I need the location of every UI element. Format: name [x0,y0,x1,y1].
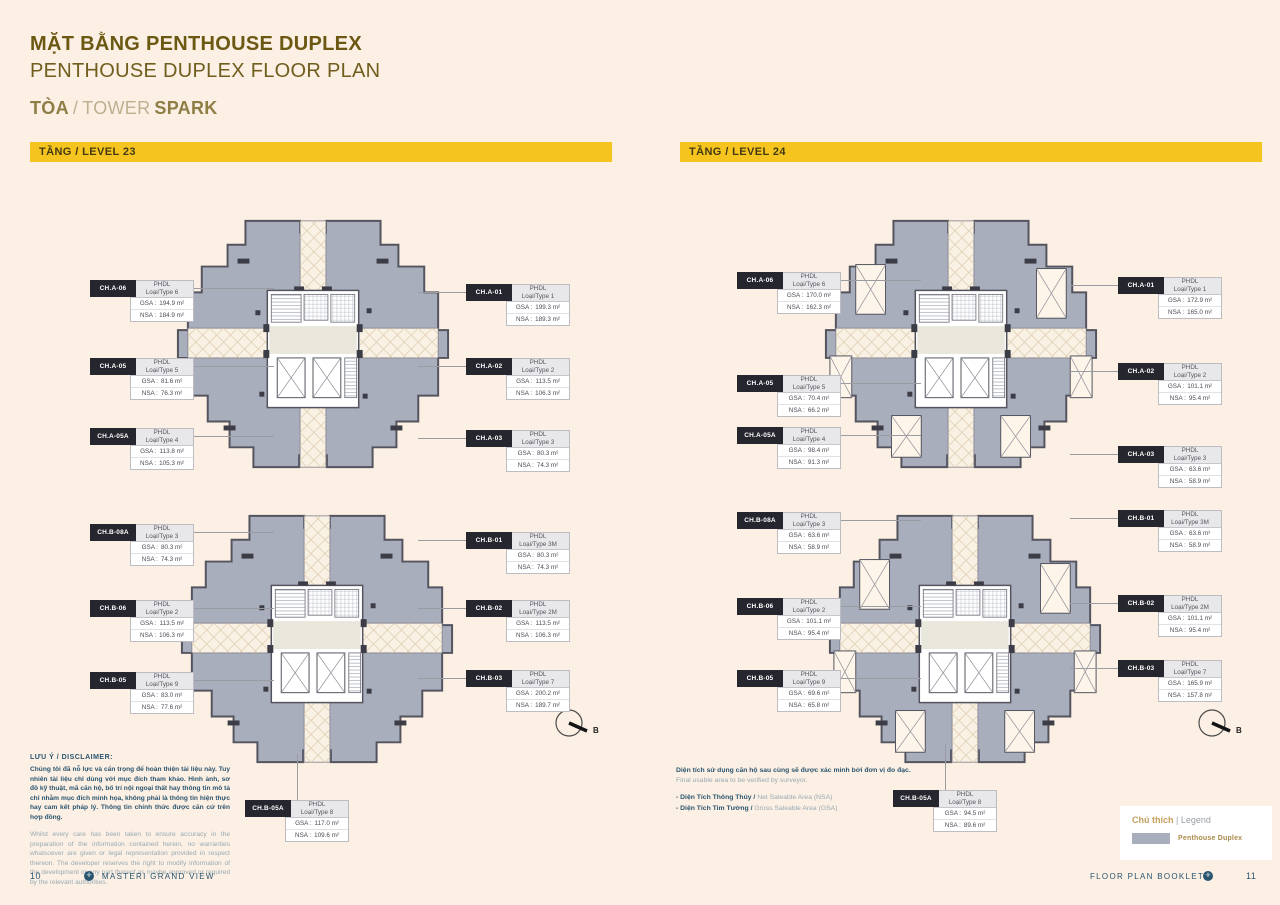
label-connector-line [418,366,466,367]
unit-code-tag: CH.A-02 [466,358,512,375]
unit-type-header: PHDL Loại/Type 2 [1159,364,1221,381]
unit-area-table: PHDL Loại/Type 6 GSA : 194.9 m² NSA : 18… [130,280,194,322]
unit-nsa-row: NSA : 189.7 m² [507,700,569,711]
gsa-value: 80.3 m² [537,450,558,457]
unit-class-label: PHDL [154,429,171,437]
gsa-key: GSA : [516,304,532,311]
nsa-label-vi: - Diện Tích Thông Thủy / [676,794,755,801]
unit-class-label: PHDL [530,533,547,541]
gsa-key: GSA : [518,552,534,559]
legend-title: Chú thích | Legend [1132,815,1260,825]
unit-info-card: CH.A-05 PHDL Loại/Type 5 GSA : 81.6 m² N… [90,358,194,400]
unit-nsa-row: NSA : 91.3 m² [778,457,840,468]
unit-class-label: PHDL [154,281,171,289]
unit-nsa-row: NSA : 65.8 m² [778,700,840,711]
unit-gsa-row: GSA : 63.6 m² [778,530,840,542]
unit-nsa-row: NSA : 77.6 m² [131,702,193,713]
nsa-value: 95.4 m² [808,630,829,637]
unit-area-table: PHDL Loại/Type 5 GSA : 70.4 m² NSA : 66.… [777,375,841,417]
gsa-value: 200.2 m² [535,690,560,697]
unit-area-table: PHDL Loại/Type 1 GSA : 199.3 m² NSA : 18… [506,284,570,326]
unit-type-header: PHDL Loại/Type 2 [507,359,569,376]
unit-type-header: PHDL Loại/Type 7 [507,671,569,688]
unit-info-card: CH.B-06 PHDL Loại/Type 2 GSA : 113.5 m² … [90,600,194,642]
unit-gsa-row: GSA : 83.0 m² [131,690,193,702]
unit-class-label: PHDL [801,428,818,436]
gsa-value: 80.3 m² [537,552,558,559]
gsa-value: 172.9 m² [1187,297,1212,304]
gsa-value: 63.6 m² [1189,466,1210,473]
unit-nsa-row: NSA : 184.9 m² [131,310,193,321]
unit-code-tag: CH.B-08A [737,512,783,529]
tower-label-en: TOWER [82,98,150,118]
unit-area-table: PHDL Loại/Type 2M GSA : 101.1 m² NSA : 9… [1158,595,1222,637]
unit-area-table: PHDL Loại/Type 4 GSA : 98.4 m² NSA : 91.… [777,427,841,469]
gsa-value: 194.9 m² [159,300,184,307]
unit-type-header: PHDL Loại/Type 2 [131,601,193,618]
level-24-banner: TẦNG / LEVEL 24 [680,142,1262,162]
unit-type-header: PHDL Loại/Type 3M [507,533,569,550]
gsa-value: 101.1 m² [1187,615,1212,622]
unit-class-label: PHDL [957,791,974,799]
unit-area-table: PHDL Loại/Type 3M GSA : 80.3 m² NSA : 74… [506,532,570,574]
unit-info-card: CH.B-08A PHDL Loại/Type 3 GSA : 63.6 m² … [737,512,841,554]
nsa-value: 165.0 m² [1187,309,1212,316]
gsa-value: 98.4 m² [808,447,829,454]
unit-nsa-row: NSA : 95.4 m² [1159,393,1221,404]
nsa-value: 65.8 m² [808,702,829,709]
level-24-banner-text: TẦNG / LEVEL 24 [689,146,786,158]
gsa-value: 80.3 m² [161,544,182,551]
unit-type-header: PHDL Loại/Type 5 [131,359,193,376]
nsa-key: NSA : [1168,692,1184,699]
unit-nsa-row: NSA : 74.3 m² [507,460,569,471]
unit-type-header: PHDL Loại/Type 9 [778,671,840,688]
unit-info-card: CH.B-05 PHDL Loại/Type 9 GSA : 69.6 m² N… [737,670,841,712]
unit-gsa-row: GSA : 101.1 m² [1159,613,1221,625]
gsa-key: GSA : [789,532,805,539]
unit-nsa-row: NSA : 74.3 m² [131,554,193,565]
unit-area-table: PHDL Loại/Type 1 GSA : 172.9 m² NSA : 16… [1158,277,1222,319]
unit-code-tag: CH.A-01 [466,284,512,301]
label-connector-line [1070,668,1118,669]
nsa-value: 76.3 m² [161,390,182,397]
legend-swatch [1132,833,1170,844]
unit-type-label: Loại/Type 2M [1171,604,1209,612]
unit-type-label: Loại/Type 5 [146,367,179,375]
nsa-key: NSA : [142,390,158,397]
unit-class-label: PHDL [530,431,547,439]
gsa-key: GSA : [787,618,803,625]
unit-nsa-row: NSA : 106.3 m² [131,630,193,641]
unit-type-header: PHDL Loại/Type 6 [778,273,840,290]
gsa-value: 113.8 m² [160,448,184,455]
nsa-value: 157.8 m² [1187,692,1212,699]
unit-nsa-row: NSA : 106.3 m² [507,630,569,641]
unit-class-label: PHDL [154,359,171,367]
unit-info-card: CH.A-03 PHDL Loại/Type 3 GSA : 80.3 m² N… [466,430,570,472]
unit-area-table: PHDL Loại/Type 9 GSA : 69.6 m² NSA : 65.… [777,670,841,712]
gsa-label-en: Gross Saleable Area (GSA) [754,805,837,812]
unit-gsa-row: GSA : 80.3 m² [507,448,569,460]
nsa-key: NSA : [789,630,805,637]
unit-gsa-row: GSA : 172.9 m² [1159,295,1221,307]
label-connector-line [1070,285,1118,286]
nsa-key: NSA : [295,832,311,839]
unit-type-label: Loại/Type 2M [519,609,557,617]
brand-mark-icon: ✛ [84,871,94,881]
gsa-key: GSA : [789,395,805,402]
unit-class-label: PHDL [1182,661,1199,669]
level-23-banner: TẦNG / LEVEL 23 [30,142,612,162]
unit-class-label: PHDL [530,285,547,293]
unit-gsa-row: GSA : 69.6 m² [778,688,840,700]
gsa-key: GSA : [1170,466,1186,473]
unit-nsa-row: NSA : 58.9 m² [778,542,840,553]
unit-type-label: Loại/Type 1 [1174,286,1207,294]
unit-gsa-row: GSA : 80.3 m² [131,542,193,554]
gsa-key: GSA : [945,810,961,817]
gsa-key: GSA : [1168,297,1184,304]
unit-area-table: PHDL Loại/Type 7 GSA : 200.2 m² NSA : 18… [506,670,570,712]
legend-title-separator: | [1176,815,1178,825]
label-connector-line [297,754,298,800]
unit-area-table: PHDL Loại/Type 2 GSA : 113.5 m² NSA : 10… [506,358,570,400]
nsa-key: NSA : [1168,309,1184,316]
unit-nsa-row: NSA : 106.3 m² [507,388,569,399]
unit-gsa-row: GSA : 113.5 m² [131,618,193,630]
nsa-key: NSA : [789,702,805,709]
label-connector-line [418,438,466,439]
unit-gsa-row: GSA : 81.6 m² [131,376,193,388]
unit-info-card: CH.B-01 PHDL Loại/Type 3M GSA : 80.3 m² … [466,532,570,574]
unit-code-tag: CH.A-02 [1118,363,1164,380]
unit-type-header: PHDL Loại/Type 2 [778,599,840,616]
gsa-value: 69.6 m² [808,690,829,697]
area-note-item: - Diện Tích Thông Thủy / Net Saleable Ar… [676,792,921,804]
unit-nsa-row: NSA : 74.3 m² [507,562,569,573]
unit-area-table: PHDL Loại/Type 2M GSA : 113.5 m² NSA : 1… [506,600,570,642]
unit-class-label: PHDL [530,359,547,367]
unit-code-tag: CH.B-05 [737,670,783,687]
nsa-key: NSA : [140,312,156,319]
gsa-value: 113.5 m² [536,620,560,627]
booklet-page: MẶT BẰNG PENTHOUSE DUPLEX PENTHOUSE DUPL… [0,0,1280,905]
north-compass: B [551,708,611,748]
unit-area-table: PHDL Loại/Type 8 GSA : 117.0 m² NSA : 10… [285,800,349,842]
gsa-key: GSA : [516,690,532,697]
gsa-value: 113.5 m² [160,620,184,627]
unit-info-card: CH.A-01 PHDL Loại/Type 1 GSA : 172.9 m² … [1118,277,1222,319]
label-connector-line [841,678,921,679]
unit-area-table: PHDL Loại/Type 2 GSA : 101.1 m² NSA : 95… [1158,363,1222,405]
unit-code-tag: CH.B-03 [1118,660,1164,677]
unit-info-card: CH.A-01 PHDL Loại/Type 1 GSA : 199.3 m² … [466,284,570,326]
unit-type-label: Loại/Type 4 [793,436,826,444]
unit-type-header: PHDL Loại/Type 3M [1159,511,1221,528]
unit-info-card: CH.B-05A PHDL Loại/Type 8 GSA : 117.0 m²… [245,800,349,842]
unit-type-header: PHDL Loại/Type 6 [131,281,193,298]
unit-class-label: PHDL [801,376,818,384]
unit-gsa-row: GSA : 200.2 m² [507,688,569,700]
unit-class-label: PHDL [801,273,818,281]
unit-type-label: Loại/Type 3 [146,533,179,541]
unit-gsa-row: GSA : 199.3 m² [507,302,569,314]
unit-type-header: PHDL Loại/Type 2M [1159,596,1221,613]
gsa-value: 113.5 m² [536,378,560,385]
gsa-key: GSA : [295,820,311,827]
unit-area-table: PHDL Loại/Type 2 GSA : 101.1 m² NSA : 95… [777,598,841,640]
nsa-key: NSA : [1170,395,1186,402]
unit-code-tag: CH.A-05 [737,375,783,392]
unit-area-table: PHDL Loại/Type 3M GSA : 63.6 m² NSA : 58… [1158,510,1222,552]
unit-type-label: Loại/Type 5 [793,384,826,392]
floor-plan-drawing [168,203,458,493]
label-connector-line [418,292,466,293]
nsa-key: NSA : [516,390,532,397]
nsa-key: NSA : [789,407,805,414]
unit-class-label: PHDL [154,601,171,609]
gsa-key: GSA : [1168,680,1184,687]
unit-area-table: PHDL Loại/Type 6 GSA : 170.0 m² NSA : 16… [777,272,841,314]
nsa-value: 66.2 m² [808,407,829,414]
nsa-key: NSA : [789,544,805,551]
nsa-key: NSA : [1170,542,1186,549]
unit-code-tag: CH.B-08A [90,524,136,541]
unit-class-label: PHDL [1182,511,1199,519]
north-compass: B [1194,708,1254,748]
unit-code-tag: CH.A-06 [737,272,783,289]
nsa-value: 89.6 m² [964,822,985,829]
unit-type-label: Loại/Type 2 [146,609,179,617]
unit-info-card: CH.A-03 PHDL Loại/Type 3 GSA : 63.6 m² N… [1118,446,1222,488]
unit-class-label: PHDL [309,801,326,809]
legend-box: Chú thích | Legend Penthouse Duplex [1120,806,1272,860]
legend-title-en: Legend [1181,815,1211,825]
unit-type-header: PHDL Loại/Type 3 [131,525,193,542]
gsa-label-vi: - Diện Tích Tim Tường / [676,805,752,812]
unit-code-tag: CH.B-05A [245,800,291,817]
disclaimer-block: LƯU Ý / DISCLAIMER: Chúng tôi đã nỗ lực … [30,754,230,888]
unit-type-header: PHDL Loại/Type 8 [286,801,348,818]
unit-type-label: Loại/Type 3M [519,541,557,549]
nsa-value: 95.4 m² [1189,627,1210,634]
unit-type-label: Loại/Type 3 [522,439,555,447]
page-title-vi: MẶT BẰNG PENTHOUSE DUPLEX [30,33,362,56]
nsa-label-en: Net Saleable Area (NSA) [757,794,832,801]
label-connector-line [194,288,274,289]
label-connector-line [194,680,274,681]
label-connector-line [1070,518,1118,519]
unit-code-tag: CH.B-06 [737,598,783,615]
gsa-key: GSA : [787,292,803,299]
unit-type-label: Loại/Type 6 [793,281,826,289]
level-23-banner-text: TẦNG / LEVEL 23 [39,146,136,158]
gsa-key: GSA : [140,300,156,307]
unit-class-label: PHDL [1182,364,1199,372]
nsa-value: 91.3 m² [808,459,829,466]
label-connector-line [1070,454,1118,455]
unit-type-header: PHDL Loại/Type 4 [778,428,840,445]
nsa-key: NSA : [516,702,532,709]
unit-gsa-row: GSA : 70.4 m² [778,393,840,405]
nsa-key: NSA : [1170,478,1186,485]
unit-type-label: Loại/Type 2 [1174,372,1207,380]
nsa-value: 106.3 m² [159,632,184,639]
nsa-key: NSA : [787,304,803,311]
label-connector-line [194,532,274,533]
nsa-value: 74.3 m² [161,556,182,563]
tower-name: SPARK [154,98,217,118]
legend-item-label: Penthouse Duplex [1178,835,1242,842]
label-connector-line [841,280,921,281]
unit-type-label: Loại/Type 1 [522,293,555,301]
gsa-value: 63.6 m² [808,532,829,539]
unit-code-tag: CH.B-01 [1118,510,1164,527]
page-title-en: PENTHOUSE DUPLEX FLOOR PLAN [30,60,380,83]
legend-item-row: Penthouse Duplex [1132,833,1260,844]
nsa-value: 189.3 m² [535,316,560,323]
nsa-key: NSA : [945,822,961,829]
unit-area-table: PHDL Loại/Type 9 GSA : 83.0 m² NSA : 77.… [130,672,194,714]
unit-area-table: PHDL Loại/Type 2 GSA : 113.5 m² NSA : 10… [130,600,194,642]
unit-type-label: Loại/Type 3 [793,521,826,529]
gsa-key: GSA : [140,448,156,455]
unit-gsa-row: GSA : 98.4 m² [778,445,840,457]
nsa-value: 109.6 m² [314,832,339,839]
gsa-key: GSA : [1168,615,1184,622]
gsa-key: GSA : [516,378,532,385]
unit-type-label: Loại/Type 9 [146,681,179,689]
unit-gsa-row: GSA : 170.0 m² [778,290,840,302]
unit-code-tag: CH.A-05A [90,428,136,445]
unit-type-label: Loại/Type 7 [1174,669,1207,677]
compass-north-label: B [593,726,599,735]
nsa-key: NSA : [518,462,534,469]
unit-type-label: Loại/Type 7 [522,679,555,687]
unit-area-table: PHDL Loại/Type 3 GSA : 63.6 m² NSA : 58.… [1158,446,1222,488]
unit-type-header: PHDL Loại/Type 3 [507,431,569,448]
unit-code-tag: CH.B-05A [893,790,939,807]
unit-type-label: Loại/Type 2 [522,367,555,375]
unit-info-card: CH.B-03 PHDL Loại/Type 7 GSA : 165.9 m² … [1118,660,1222,702]
gsa-value: 101.1 m² [1187,383,1212,390]
gsa-value: 170.0 m² [806,292,831,299]
area-note-item: - Diện Tích Tim Tường / Gross Saleable A… [676,803,921,815]
unit-info-card: CH.B-02 PHDL Loại/Type 2M GSA : 113.5 m²… [466,600,570,642]
unit-class-label: PHDL [154,673,171,681]
gsa-value: 101.1 m² [806,618,831,625]
unit-type-header: PHDL Loại/Type 7 [1159,661,1221,678]
unit-area-table: PHDL Loại/Type 8 GSA : 94.5 m² NSA : 89.… [933,790,997,832]
unit-area-table: PHDL Loại/Type 3 GSA : 80.3 m² NSA : 74.… [506,430,570,472]
unit-area-table: PHDL Loại/Type 3 GSA : 63.6 m² NSA : 58.… [777,512,841,554]
nsa-key: NSA : [516,632,532,639]
unit-code-tag: CH.B-02 [466,600,512,617]
unit-type-header: PHDL Loại/Type 3 [1159,447,1221,464]
unit-code-tag: CH.A-01 [1118,277,1164,294]
unit-info-card: CH.A-06 PHDL Loại/Type 6 GSA : 170.0 m² … [737,272,841,314]
gsa-key: GSA : [1168,383,1184,390]
unit-code-tag: CH.B-06 [90,600,136,617]
unit-code-tag: CH.B-02 [1118,595,1164,612]
unit-class-label: PHDL [801,599,818,607]
unit-code-tag: CH.A-06 [90,280,136,297]
nsa-value: 184.9 m² [159,312,184,319]
unit-gsa-row: GSA : 165.9 m² [1159,678,1221,690]
label-connector-line [1070,603,1118,604]
unit-gsa-row: GSA : 113.8 m² [131,446,193,458]
gsa-value: 199.3 m² [535,304,560,311]
booklet-title: FLOOR PLAN BOOKLET [1090,872,1204,881]
unit-gsa-row: GSA : 113.5 m² [507,618,569,630]
nsa-value: 106.3 m² [535,632,560,639]
unit-class-label: PHDL [530,671,547,679]
gsa-value: 117.0 m² [315,820,339,827]
nsa-value: 106.3 m² [535,390,560,397]
nsa-value: 74.3 m² [537,462,558,469]
unit-type-header: PHDL Loại/Type 9 [131,673,193,690]
unit-class-label: PHDL [1182,278,1199,286]
unit-nsa-row: NSA : 76.3 m² [131,388,193,399]
unit-gsa-row: GSA : 194.9 m² [131,298,193,310]
nsa-key: NSA : [142,556,158,563]
unit-code-tag: CH.B-01 [466,532,512,549]
unit-class-label: PHDL [801,671,818,679]
brand-name: MASTERI GRAND VIEW [102,872,215,881]
unit-type-header: PHDL Loại/Type 1 [507,285,569,302]
unit-gsa-row: GSA : 80.3 m² [507,550,569,562]
unit-type-label: Loại/Type 3 [1174,455,1207,463]
unit-class-label: PHDL [801,513,818,521]
unit-code-tag: CH.A-03 [466,430,512,447]
nsa-value: 105.3 m² [159,460,184,467]
unit-type-header: PHDL Loại/Type 1 [1159,278,1221,295]
unit-type-label: Loại/Type 2 [793,607,826,615]
unit-info-card: CH.B-01 PHDL Loại/Type 3M GSA : 63.6 m² … [1118,510,1222,552]
unit-info-card: CH.A-05A PHDL Loại/Type 4 GSA : 98.4 m² … [737,427,841,469]
unit-class-label: PHDL [1182,596,1199,604]
label-connector-line [841,520,921,521]
tower-label-vi: TÒA [30,98,69,118]
area-note-block: Diện tích sử dụng căn hộ sau cùng sẽ đượ… [676,766,921,815]
gsa-value: 63.6 m² [1189,530,1210,537]
unit-info-card: CH.A-02 PHDL Loại/Type 2 GSA : 101.1 m² … [1118,363,1222,405]
nsa-key: NSA : [518,564,534,571]
label-connector-line [1070,371,1118,372]
gsa-key: GSA : [142,378,158,385]
nsa-value: 95.4 m² [1189,395,1210,402]
disclaimer-text-vi: Chúng tôi đã nỗ lực và cẩn trọng để hoàn… [30,765,230,822]
page-number-right: 11 [1246,871,1256,881]
unit-gsa-row: GSA : 113.5 m² [507,376,569,388]
brand-mark-icon: ✛ [1203,871,1213,881]
gsa-value: 94.5 m² [964,810,985,817]
gsa-value: 70.4 m² [808,395,829,402]
unit-class-label: PHDL [1182,447,1199,455]
unit-code-tag: CH.A-05A [737,427,783,444]
unit-nsa-row: NSA : 95.4 m² [778,628,840,639]
tower-subtitle: TÒA/TOWERSPARK [30,98,222,119]
unit-area-table: PHDL Loại/Type 5 GSA : 81.6 m² NSA : 76.… [130,358,194,400]
unit-type-header: PHDL Loại/Type 4 [131,429,193,446]
label-connector-line [945,744,946,790]
unit-gsa-row: GSA : 63.6 m² [1159,464,1221,476]
unit-type-label: Loại/Type 4 [146,437,179,445]
page-number-left: 10 [30,871,41,881]
nsa-value: 74.3 m² [537,564,558,571]
nsa-key: NSA : [1170,627,1186,634]
